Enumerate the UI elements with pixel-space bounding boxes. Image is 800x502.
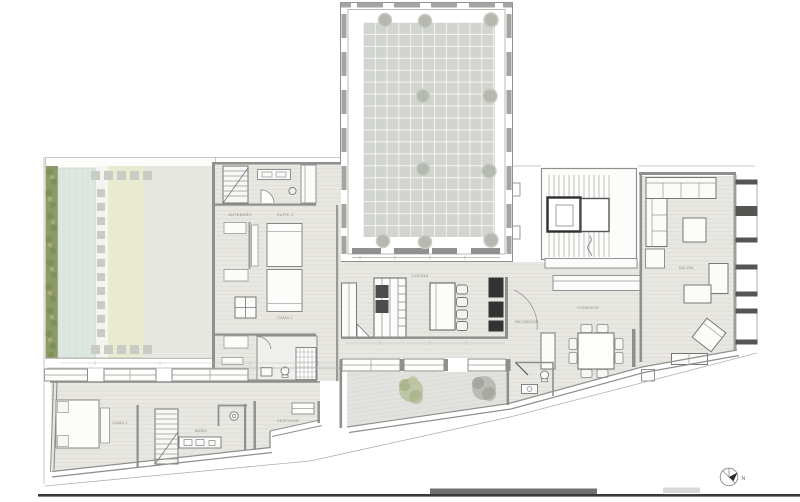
svg-text:SALON: SALON xyxy=(679,265,694,270)
svg-text:VESTIDOR: VESTIDOR xyxy=(277,418,299,423)
svg-text:CAMA 2: CAMA 2 xyxy=(277,315,293,320)
svg-text:N: N xyxy=(742,476,746,482)
svg-text:ANTEBAÑO: ANTEBAÑO xyxy=(228,212,252,217)
svg-text:CAMA 1: CAMA 1 xyxy=(112,420,128,425)
svg-text:COCINA: COCINA xyxy=(412,273,429,278)
svg-text:SUITE 2: SUITE 2 xyxy=(277,212,294,217)
svg-text:RECIBIDOR: RECIBIDOR xyxy=(515,319,539,324)
svg-text:BAÑO: BAÑO xyxy=(195,428,207,433)
svg-text:COMEDOR: COMEDOR xyxy=(577,305,599,310)
